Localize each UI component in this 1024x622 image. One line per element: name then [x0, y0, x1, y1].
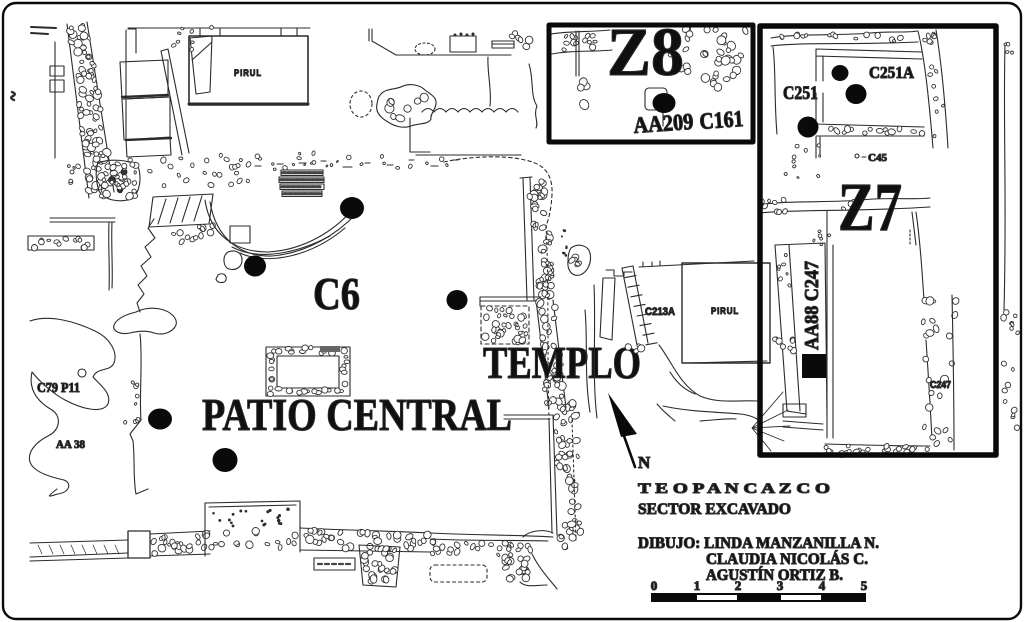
svg-text:PATIO CENTRAL: PATIO CENTRAL: [202, 389, 512, 440]
svg-text:1: 1: [694, 578, 701, 593]
svg-text:C45: C45: [868, 152, 887, 164]
svg-text:N: N: [638, 453, 651, 472]
svg-text:2: 2: [735, 578, 742, 593]
svg-text:SECTOR EXCAVADO: SECTOR EXCAVADO: [638, 501, 791, 518]
svg-text:5: 5: [861, 578, 868, 593]
svg-text:Z7: Z7: [838, 169, 902, 245]
svg-text:3: 3: [777, 578, 784, 593]
svg-text:PIRUL: PIRUL: [234, 68, 262, 79]
svg-text:4: 4: [819, 578, 826, 593]
svg-text:0: 0: [651, 578, 658, 593]
svg-text:C6: C6: [313, 268, 360, 319]
svg-text:T E O P A N C A Z C O: T E O P A N C A Z C O: [638, 481, 830, 497]
svg-text:CLAUDIA NICOLÁS C.: CLAUDIA NICOLÁS C.: [706, 549, 868, 568]
svg-text:C161: C161: [699, 106, 745, 134]
svg-text:C251A: C251A: [869, 63, 915, 82]
svg-text:C247: C247: [930, 380, 951, 391]
svg-text:PIRUL: PIRUL: [711, 306, 739, 317]
svg-text:C251: C251: [783, 83, 818, 104]
svg-text:AA88 C247: AA88 C247: [801, 261, 823, 350]
svg-text:AA209: AA209: [633, 109, 695, 138]
svg-text:Z8: Z8: [607, 14, 684, 90]
svg-text:C213A: C213A: [645, 306, 675, 318]
svg-text:DIBUJO: LINDA MANZANILLA N.: DIBUJO: LINDA MANZANILLA N.: [638, 535, 879, 552]
svg-text:C79 P11: C79 P11: [37, 381, 80, 396]
svg-text:TEMPLO: TEMPLO: [483, 338, 641, 388]
svg-text:AA 38: AA 38: [56, 437, 85, 451]
